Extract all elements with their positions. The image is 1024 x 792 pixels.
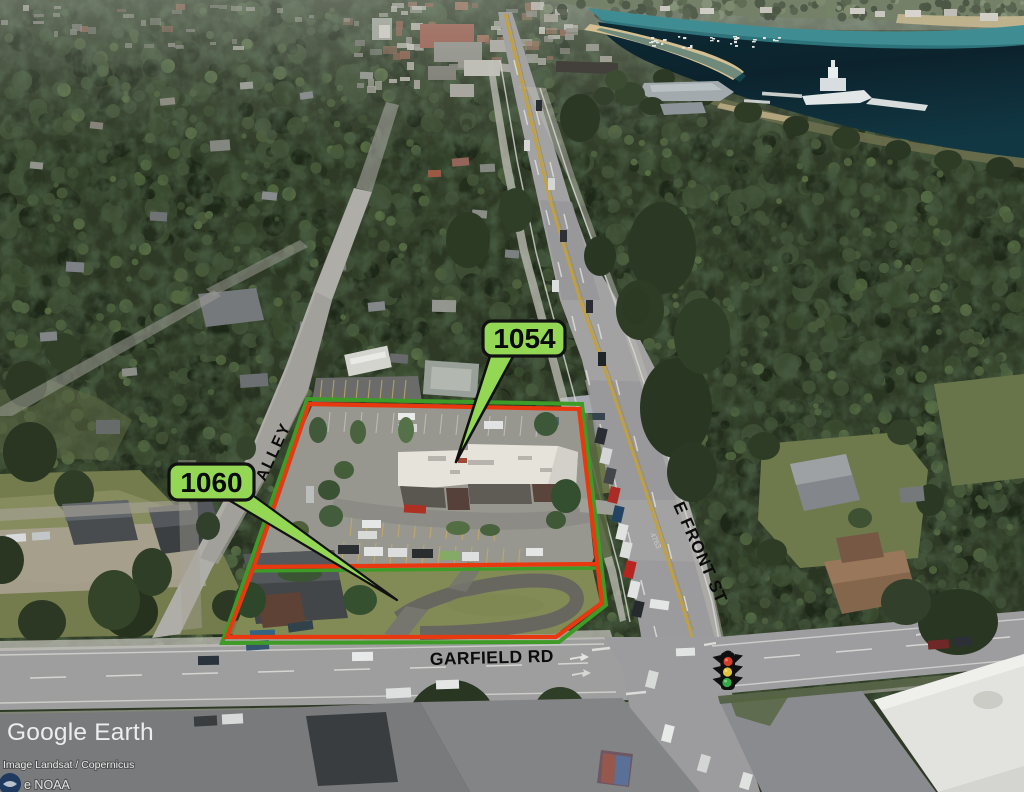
- svg-text:e NOAA: e NOAA: [24, 778, 71, 792]
- svg-text:Google Earth: Google Earth: [7, 719, 154, 746]
- svg-text:GARFIELD RD: GARFIELD RD: [430, 646, 554, 669]
- svg-text:Image Landsat / Copernicus: Image Landsat / Copernicus: [3, 759, 134, 771]
- svg-text:1060: 1060: [180, 467, 242, 498]
- svg-text:1054: 1054: [493, 323, 556, 354]
